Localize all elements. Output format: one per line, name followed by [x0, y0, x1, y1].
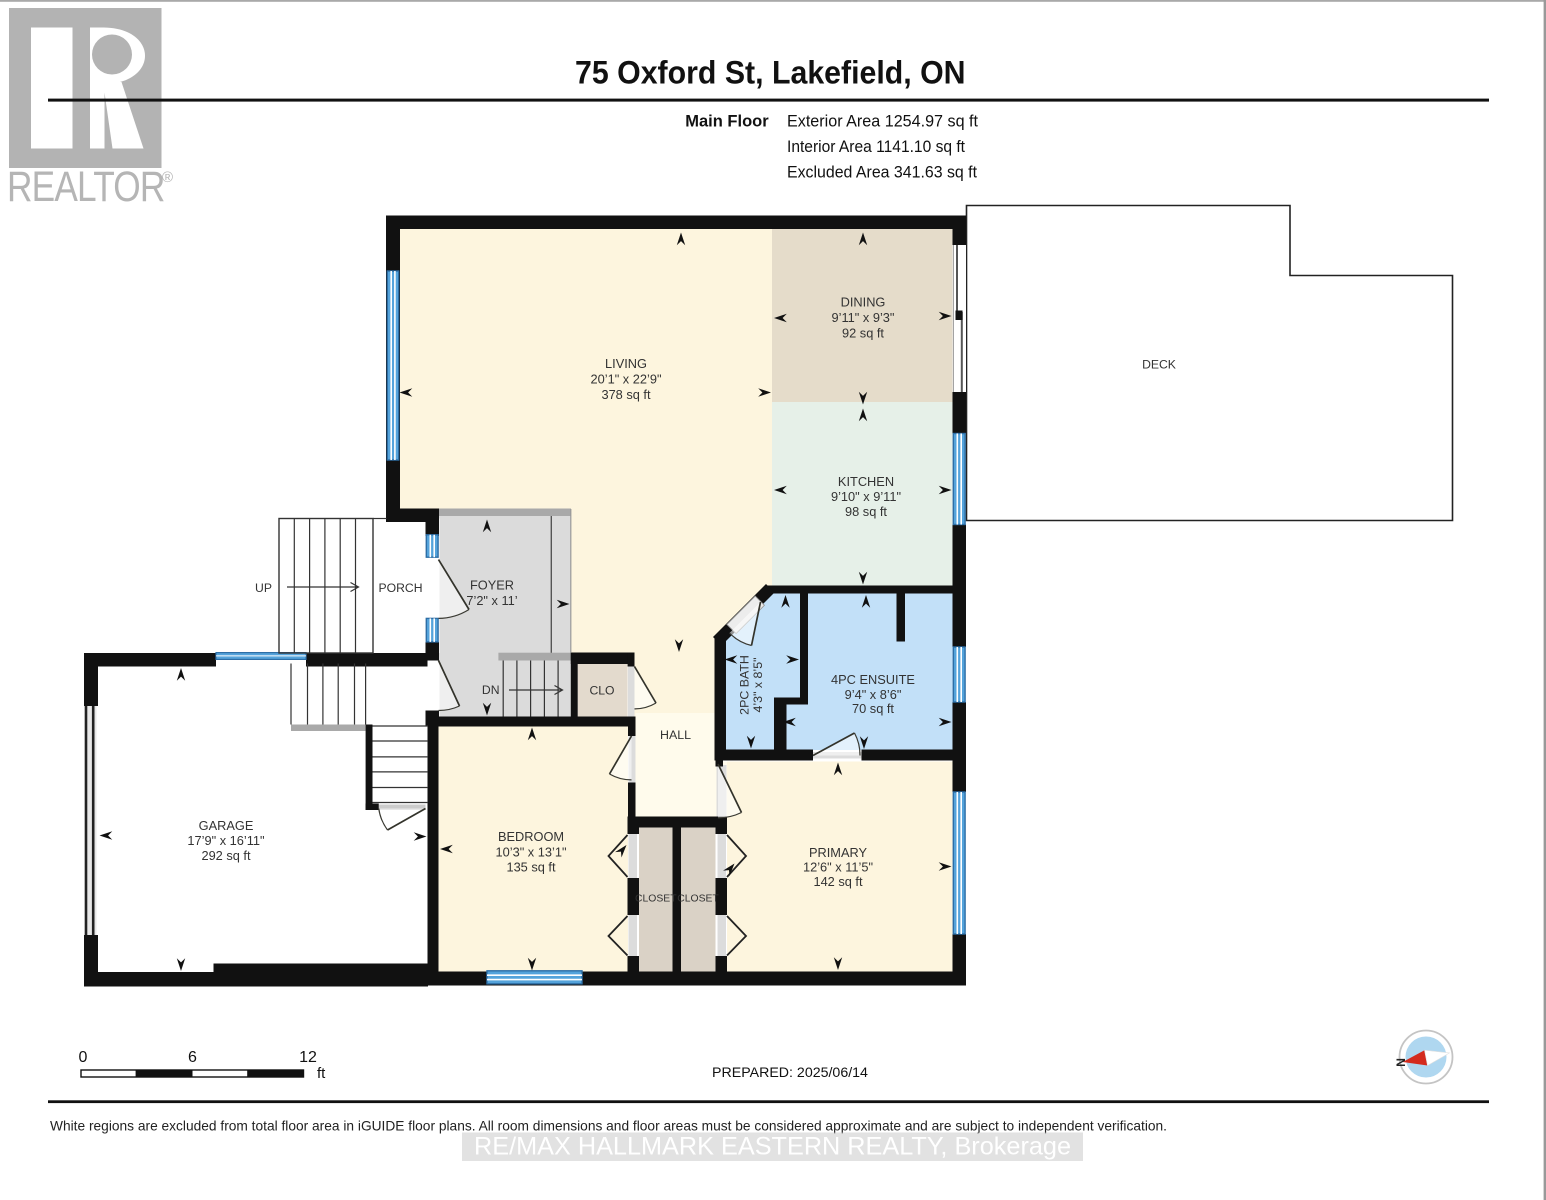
- svg-text:70 sq ft: 70 sq ft: [852, 701, 894, 716]
- svg-text:HALL: HALL: [660, 728, 691, 742]
- svg-text:KITCHEN: KITCHEN: [838, 474, 894, 489]
- svg-text:N: N: [1394, 1058, 1408, 1067]
- svg-text:DECK: DECK: [1142, 358, 1176, 372]
- svg-text:Excluded Area 341.63 sq ft: Excluded Area 341.63 sq ft: [787, 163, 977, 182]
- svg-text:White regions are excluded fro: White regions are excluded from total fl…: [50, 1119, 1167, 1134]
- svg-text:2PC BATH: 2PC BATH: [738, 655, 752, 715]
- svg-text:12: 12: [299, 1049, 317, 1066]
- svg-text:LIVING: LIVING: [605, 356, 647, 371]
- svg-text:135 sq ft: 135 sq ft: [506, 860, 556, 875]
- svg-text:PORCH: PORCH: [378, 581, 422, 595]
- svg-text:292 sq ft: 292 sq ft: [201, 848, 251, 863]
- svg-text:GARAGE: GARAGE: [199, 818, 254, 833]
- svg-text:9’10" x 9’11": 9’10" x 9’11": [831, 489, 901, 504]
- svg-text:Exterior Area 1254.97 sq ft: Exterior Area 1254.97 sq ft: [787, 112, 978, 131]
- svg-text:REALTOR: REALTOR: [7, 163, 165, 211]
- svg-text:ft: ft: [317, 1065, 326, 1082]
- svg-text:4PC ENSUITE: 4PC ENSUITE: [831, 672, 915, 687]
- svg-text:CLO: CLO: [589, 684, 614, 698]
- svg-text:7’2" x 11’: 7’2" x 11’: [466, 593, 517, 608]
- svg-text:PREPARED: 2025/06/14: PREPARED: 2025/06/14: [712, 1065, 868, 1081]
- svg-text:9’4" x 8’6": 9’4" x 8’6": [845, 687, 902, 702]
- svg-text:17’9" x 16’11": 17’9" x 16’11": [187, 833, 264, 848]
- svg-text:20’1" x 22’9": 20’1" x 22’9": [591, 372, 662, 387]
- svg-text:CLOSET: CLOSET: [635, 894, 677, 905]
- svg-text:75 Oxford St, Lakefield, ON: 75 Oxford St, Lakefield, ON: [575, 55, 966, 91]
- svg-text:4’3" x 8’5": 4’3" x 8’5": [751, 658, 765, 713]
- svg-text:98 sq ft: 98 sq ft: [845, 504, 887, 519]
- svg-text:0: 0: [79, 1049, 88, 1066]
- svg-text:6: 6: [188, 1049, 197, 1066]
- svg-text:CLOSET: CLOSET: [677, 894, 719, 905]
- svg-text:92 sq ft: 92 sq ft: [842, 326, 884, 341]
- svg-text:142 sq ft: 142 sq ft: [813, 874, 863, 889]
- svg-text:9’11" x 9’3": 9’11" x 9’3": [832, 310, 895, 325]
- svg-text:FOYER: FOYER: [470, 578, 514, 593]
- svg-text:PRIMARY: PRIMARY: [809, 845, 868, 860]
- svg-text:UP: UP: [255, 581, 272, 595]
- svg-text:Main Floor: Main Floor: [685, 113, 769, 131]
- svg-text:378 sq ft: 378 sq ft: [601, 387, 651, 402]
- svg-text:12’6" x 11’5": 12’6" x 11’5": [803, 860, 873, 875]
- svg-text:DN: DN: [482, 683, 500, 697]
- svg-text:10’3" x 13’1": 10’3" x 13’1": [496, 845, 567, 860]
- svg-text:Interior Area 1141.10 sq ft: Interior Area 1141.10 sq ft: [787, 137, 965, 156]
- svg-text:RE/MAX HALLMARK EASTERN REALTY: RE/MAX HALLMARK EASTERN REALTY, Brokerag…: [474, 1133, 1071, 1161]
- svg-text:®: ®: [162, 169, 173, 186]
- svg-text:DINING: DINING: [841, 295, 886, 310]
- svg-text:BEDROOM: BEDROOM: [498, 829, 564, 844]
